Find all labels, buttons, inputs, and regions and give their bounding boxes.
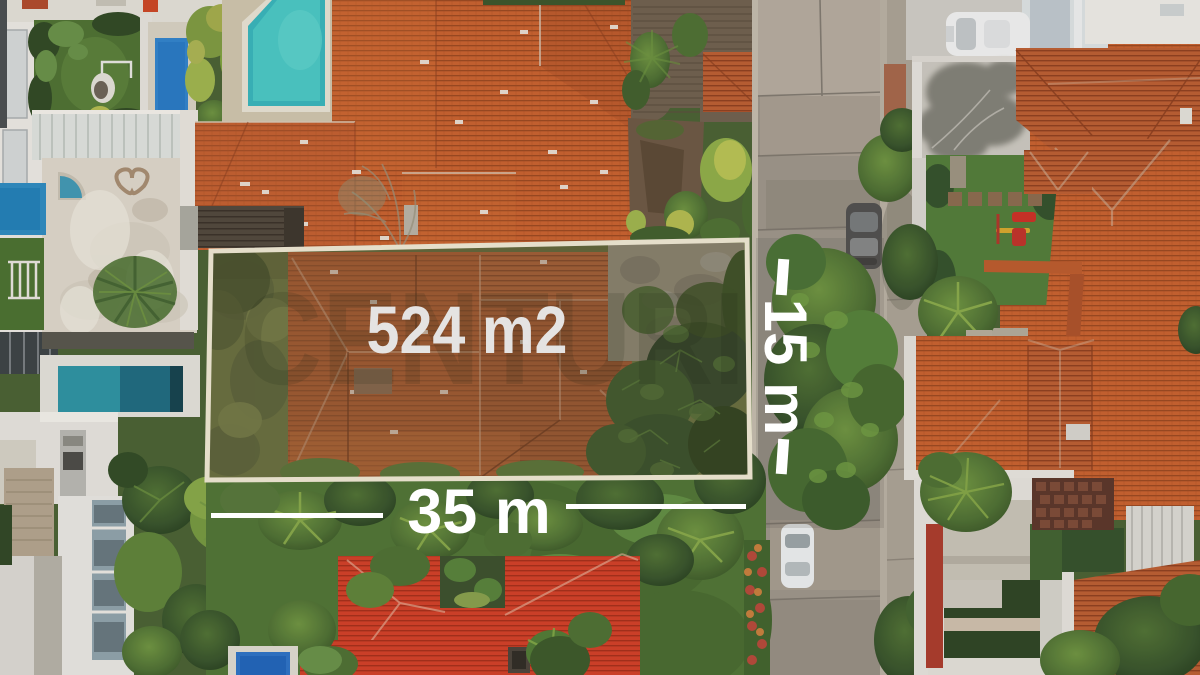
svg-text:524 m2: 524 m2 <box>367 293 568 368</box>
svg-text:15 m: 15 m <box>752 299 819 436</box>
svg-text:35 m: 35 m <box>407 477 551 547</box>
